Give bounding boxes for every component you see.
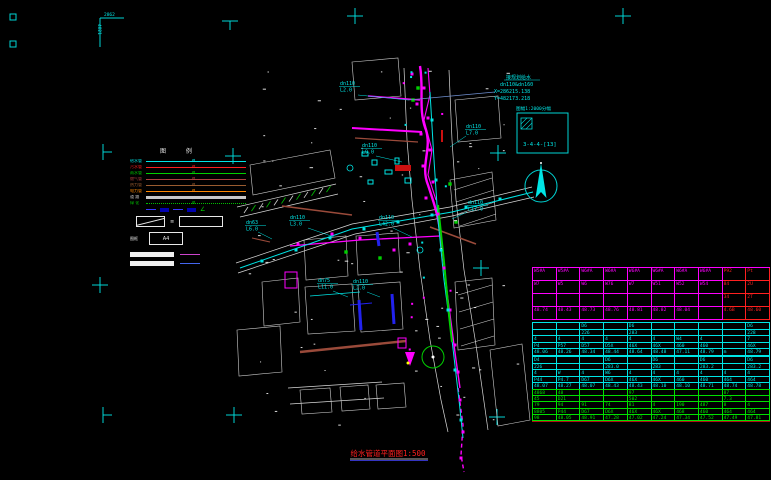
- equals-mark: ≡: [170, 219, 174, 225]
- white-bar-symbol: [130, 261, 174, 266]
- legend-item-line: ø: [146, 167, 246, 168]
- table-cell: 464: [746, 377, 770, 384]
- svg-text:L11.0: L11.0: [318, 285, 333, 291]
- navy-block-symbol: [160, 208, 169, 212]
- table-cell: 4: [699, 336, 723, 343]
- table-cell: [557, 294, 581, 307]
- table-cell: 48.43: [557, 307, 581, 320]
- drawing-title-group: 给水管道平面图1:500: [350, 448, 428, 461]
- table-cell: [557, 364, 581, 371]
- table-cell: P4: [533, 343, 557, 350]
- table-cell: D67: [580, 377, 604, 384]
- table-cell: 46X: [628, 377, 652, 384]
- table-cell: 4: [723, 370, 747, 377]
- table-cell: m: [723, 349, 747, 356]
- table-cell: 4: [652, 336, 676, 343]
- table-cell: 47.81: [746, 415, 770, 421]
- table-cell: [699, 323, 723, 330]
- table-cell: 4: [557, 336, 581, 343]
- blue-line-symbol: [180, 263, 200, 264]
- table-cell: [580, 357, 604, 364]
- table-cell: 48.73: [580, 307, 604, 320]
- empty-symbol-box: [179, 216, 223, 227]
- a4-frame-box: A4: [149, 232, 183, 245]
- table-cell: [604, 323, 628, 330]
- legend-title: 图 例: [160, 146, 246, 155]
- svg-text:dn110: dn110: [353, 279, 368, 285]
- table-cell: W7: [628, 281, 652, 294]
- table-cell: 4: [533, 336, 557, 343]
- table-cell: W4: [675, 336, 699, 343]
- table-cell: 48.34: [580, 349, 604, 356]
- table-cell: D4: [533, 357, 557, 364]
- table-cell: W: [557, 370, 581, 377]
- table-cell: 98: [533, 415, 557, 421]
- table-cell: 4: [746, 370, 770, 377]
- table-cell: [723, 330, 747, 337]
- pipe-label: dn63L6.0: [245, 220, 272, 239]
- svg-text:L6.0: L6.0: [246, 227, 258, 233]
- table-cell: 4: [580, 370, 604, 377]
- table-cell: 226: [580, 330, 604, 337]
- table-cell: 2U: [746, 281, 770, 294]
- pipe-label: dn110L7.0: [450, 124, 486, 147]
- table-cell: 48.48: [652, 349, 676, 356]
- table-cell: 48.05: [557, 415, 581, 421]
- valve-symbol: ø: [192, 196, 195, 200]
- table-cell: 47.52: [699, 415, 723, 421]
- table-cell: W6#A: [604, 268, 628, 281]
- svg-text:L9.0: L9.0: [362, 150, 374, 156]
- legend-item-line: ø: [146, 185, 246, 186]
- table-cell: [604, 330, 628, 337]
- table-cell: 4: [628, 336, 652, 343]
- legend-item-label: 电力管: [130, 189, 146, 193]
- table-cell: [533, 330, 557, 337]
- table-cell: [723, 364, 747, 371]
- legend-item-line: ø: [146, 161, 246, 162]
- cyan-pipes: [240, 92, 533, 438]
- angle-symbol: ∠: [200, 207, 205, 213]
- valve-symbol: ø: [192, 159, 195, 163]
- table-cell: [580, 294, 604, 307]
- svg-text:L2.0: L2.0: [340, 88, 352, 94]
- table-cell: 48.04: [675, 307, 699, 320]
- table-cell: 283.2: [746, 364, 770, 371]
- svg-text:L2.0: L2.0: [353, 286, 365, 292]
- table-cell: W51: [652, 281, 676, 294]
- table-cell: 48.91: [580, 415, 604, 421]
- table-block: D6D6D6226283228444444W447P4P57D57D5X46X4…: [532, 322, 770, 356]
- table-cell: 4: [533, 370, 557, 377]
- svg-text:L17.0: L17.0: [468, 207, 483, 213]
- table-cell: D6: [746, 357, 770, 364]
- table-cell: W52: [675, 281, 699, 294]
- sheet-index-box: 图幅1:2000分幅 3-4-4-[13]: [516, 105, 568, 153]
- table-cell: [652, 323, 676, 330]
- svg-text:dn110: dn110: [290, 215, 305, 221]
- table-cell: 2T: [746, 294, 770, 307]
- pipe-label: dn110L2.0: [352, 279, 380, 297]
- table-cell: D6: [628, 323, 652, 330]
- table-cell: 48.74: [533, 307, 557, 320]
- table-cell: [723, 357, 747, 364]
- table-cell: 46X: [746, 343, 770, 350]
- table-cell: [699, 307, 723, 320]
- table-cell: 283.2: [699, 364, 723, 371]
- table-cell: W6#A: [699, 268, 723, 281]
- blue-dash-symbol: [173, 209, 183, 210]
- table-cell: 283.0: [604, 364, 628, 371]
- table-cell: 228: [746, 330, 770, 337]
- table-cell: [628, 364, 652, 371]
- valve-symbol: ø: [192, 189, 195, 193]
- table-cell: 48.79: [699, 349, 723, 356]
- table-cell: [604, 294, 628, 307]
- table-cell: [557, 357, 581, 364]
- legend-symbol-row: ∠: [146, 206, 246, 213]
- svg-text:dn110: dn110: [379, 215, 394, 221]
- table-cell: 48.44: [604, 349, 628, 356]
- legend-item-label: 雨水管: [130, 171, 146, 175]
- table-cell: W6#A: [580, 268, 604, 281]
- table-cell: W6#A: [675, 268, 699, 281]
- table-block: D4D6D6D6D6226283.0283283.2283.24W4W64444…: [532, 356, 770, 390]
- svg-text:dn110: dn110: [362, 143, 377, 149]
- table-cell: [557, 330, 581, 337]
- legend-item-line: ø: [146, 173, 246, 174]
- table-cell: 4: [652, 370, 676, 377]
- svg-text:dn75: dn75: [318, 278, 330, 284]
- svg-text:L42.0: L42.0: [379, 222, 394, 228]
- table-cell: 460: [699, 343, 723, 350]
- table-cell: 48.79: [746, 349, 770, 356]
- legend: 图 例 给水管ø污水管ø雨水管ø燃气管ø热力管ø电力管ø道 路ø绿 化ø ∠ ≡…: [130, 146, 246, 268]
- magenta-pipes: [285, 66, 464, 472]
- table-cell: 46X: [628, 343, 652, 350]
- pipe-label: dn110L2.0: [339, 81, 408, 100]
- valve-symbol: ø: [192, 165, 195, 169]
- table-cell: 47.34: [675, 415, 699, 421]
- table-cell: 460: [699, 377, 723, 384]
- sheet-index-cell: 3-4-4-[13]: [523, 142, 557, 148]
- white-bar-symbol: [130, 252, 174, 257]
- blue-dash-symbol: [146, 209, 156, 210]
- table-cell: 48.26: [557, 349, 581, 356]
- north-arrow: [525, 162, 557, 202]
- legend-item-label: 污水管: [130, 165, 146, 169]
- table-cell: 34: [723, 294, 747, 307]
- table-cell: D6X: [604, 377, 628, 384]
- table-cell: 4: [604, 336, 628, 343]
- table-cell: W5#A: [557, 268, 581, 281]
- legend-bars: [130, 250, 246, 268]
- table-cell: 47.49: [723, 415, 747, 421]
- table-cell: W6: [580, 281, 604, 294]
- legend-item-label: 燃气管: [130, 177, 146, 181]
- table-cell: 7: [746, 336, 770, 343]
- table-cell: [699, 330, 723, 337]
- legend-box-row: ≡: [136, 216, 246, 227]
- table-cell: [675, 323, 699, 330]
- table-cell: W5#A: [533, 268, 557, 281]
- annotation-line4: Y=482173.218: [494, 96, 530, 102]
- table-cell: 46X: [652, 343, 676, 350]
- table-cell: W5: [557, 281, 581, 294]
- table-cell: [675, 294, 699, 307]
- table-cell: Pt: [746, 268, 770, 281]
- table-cell: 48.64: [628, 349, 652, 356]
- table-cell: [652, 330, 676, 337]
- corner-left-label: 4821: [96, 24, 102, 35]
- table-block: W5#AW5#AW6#AW6#AW6#AW6#AW6#AW6#AP92PtW7W…: [532, 267, 770, 320]
- table-cell: 47.02: [628, 415, 652, 421]
- valve-symbol: ø: [192, 183, 195, 187]
- road-hatch-marks: [244, 186, 331, 213]
- drawing-title: 给水管道平面图1:500: [350, 448, 426, 458]
- legend-item-line: ø: [146, 179, 246, 180]
- pipe-label: dn110L42.0: [378, 215, 412, 237]
- table-cell: 4: [580, 336, 604, 343]
- table-cell: D6: [746, 323, 770, 330]
- table-cell: P92: [723, 268, 747, 281]
- coord-annotation: 接规划给水 dn110&dn160 X=286215.138 Y=482173.…: [408, 74, 540, 102]
- table-cell: [675, 330, 699, 337]
- legend-a4-row: 图框 A4: [130, 232, 246, 245]
- table-cell: [533, 323, 557, 330]
- sheet-corner-mark: 2862 4821: [96, 12, 124, 47]
- table-cell: 4: [699, 370, 723, 377]
- legend-item-label: 给水管: [130, 159, 146, 163]
- legend-item-line: ø: [146, 196, 246, 199]
- svg-text:dn110: dn110: [340, 81, 355, 87]
- table-cell: W7: [533, 281, 557, 294]
- table-cell: W76: [604, 281, 628, 294]
- table-bottom-rule: [532, 421, 770, 422]
- table-cell: D6: [580, 323, 604, 330]
- road-network: [236, 68, 534, 432]
- table-cell: [723, 343, 747, 350]
- magenta-line-symbol: [180, 254, 200, 255]
- table-cell: 47.28: [604, 415, 628, 421]
- svg-text:L3.0: L3.0: [290, 222, 302, 228]
- svg-text:dn63: dn63: [246, 220, 258, 226]
- table-cell: 48.76: [604, 307, 628, 320]
- table-cell: [580, 364, 604, 371]
- table-cell: P4.7: [557, 377, 581, 384]
- cad-drawing-canvas[interactable]: 2862 4821: [0, 0, 771, 480]
- legend-item-label: 热力管: [130, 183, 146, 187]
- sheet-index-label: 图幅1:2000分幅: [516, 105, 551, 112]
- table-cell: 48.81: [628, 307, 652, 320]
- table-cell: D5X: [604, 343, 628, 350]
- table-cell: 46X: [652, 377, 676, 384]
- table-cell: 460: [675, 377, 699, 384]
- legend-item-line: ø: [146, 191, 246, 192]
- table-cell: [723, 323, 747, 330]
- table-cell: 464: [723, 377, 747, 384]
- annotation-line1: 接规划给水: [506, 74, 531, 81]
- table-cell: [723, 336, 747, 343]
- table-cell: [533, 294, 557, 307]
- valve-symbol: ø: [192, 177, 195, 181]
- slope-symbol-box: [136, 216, 165, 227]
- table-cell: 4.6B: [723, 307, 747, 320]
- frame-label: 图框: [130, 236, 144, 242]
- table-cell: D6: [699, 357, 723, 364]
- table-cell: W54: [699, 281, 723, 294]
- navy-block-symbol: [187, 208, 196, 212]
- table-cell: 226: [533, 364, 557, 371]
- annotation-line2: dn110&dn160: [500, 82, 533, 88]
- table-cell: D6: [652, 357, 676, 364]
- table-cell: P57: [557, 343, 581, 350]
- valve-symbol: ø: [192, 171, 195, 175]
- legend-line-items: 给水管ø污水管ø雨水管ø燃气管ø热力管ø电力管ø道 路ø绿 化ø: [130, 158, 246, 206]
- table-cell: [652, 294, 676, 307]
- valve-symbol: ø: [192, 201, 195, 205]
- table-cell: [628, 357, 652, 364]
- annotation-line3: X=286215.138: [494, 89, 530, 95]
- legend-item-label: 道 路: [130, 195, 146, 199]
- table-cell: 283: [628, 330, 652, 337]
- table-cell: [628, 294, 652, 307]
- table-cell: 47.24: [652, 415, 676, 421]
- table-cell: W6#A: [628, 268, 652, 281]
- table-cell: W6: [604, 370, 628, 377]
- table-cell: D57: [580, 343, 604, 350]
- table-cell: [557, 323, 581, 330]
- legend-item-label: 绿 化: [130, 201, 146, 205]
- table-cell: P44: [533, 377, 557, 384]
- table-cell: 84: [723, 281, 747, 294]
- table-block: 486848978745D215027.37994917481419048784…: [532, 389, 770, 421]
- svg-text:dn110: dn110: [466, 124, 481, 130]
- table-cell: 460: [675, 343, 699, 350]
- pipe-label: dn110L9.0: [361, 143, 402, 162]
- svg-text:L7.0: L7.0: [466, 131, 478, 137]
- svg-text:dn110: dn110: [468, 200, 483, 206]
- table-cell: 283: [652, 364, 676, 371]
- corner-top-label: 2862: [104, 12, 115, 18]
- table-cell: 48.60: [746, 307, 770, 320]
- table-cell: 4: [628, 370, 652, 377]
- parcel-outlines: [237, 58, 530, 426]
- table-cell: 47.11: [675, 349, 699, 356]
- table-cell: 48.06: [533, 349, 557, 356]
- table-cell: [699, 294, 723, 307]
- table-cell: [675, 357, 699, 364]
- table-cell: D6: [604, 357, 628, 364]
- legend-item-line: ø: [146, 203, 246, 204]
- table-cell: 48.82: [652, 307, 676, 320]
- pipe-label: dn110L3.0: [289, 215, 334, 237]
- table-cell: [675, 364, 699, 371]
- table-cell: W6#A: [652, 268, 676, 281]
- table-cell: 4: [675, 370, 699, 377]
